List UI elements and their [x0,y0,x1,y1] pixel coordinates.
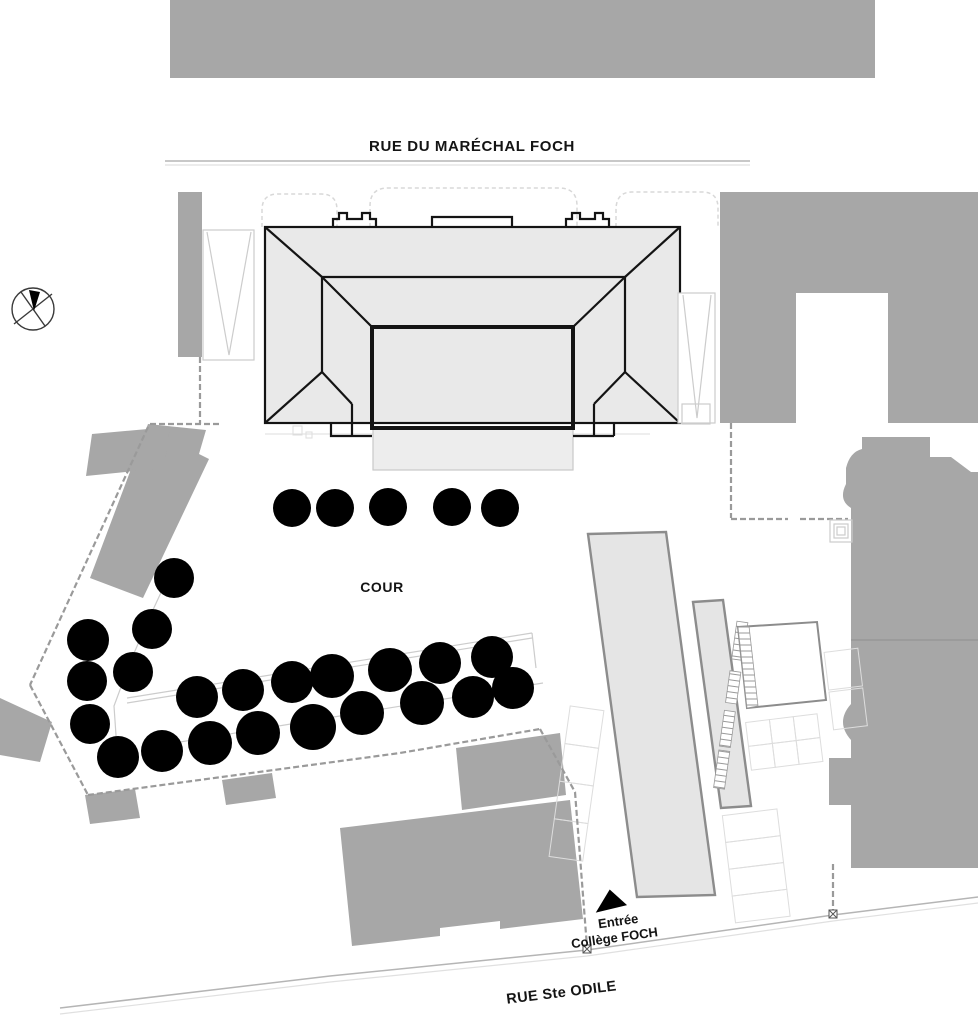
tree [176,676,218,718]
tree [141,730,183,772]
tree [222,669,264,711]
south-neighbour-building [340,800,583,946]
garden-walk-end [532,633,536,668]
main-building [262,188,718,470]
tree [368,648,412,692]
tree [369,488,407,526]
street-label-foch: RUE DU MARÉCHAL FOCH [369,138,575,155]
south-boundary-block-2 [222,773,276,805]
southwest-corner-block [0,698,52,762]
canopy-arc-center [370,188,577,227]
gate-marker-east [829,910,837,918]
tree [113,652,153,692]
sidewalk-mark-2 [306,432,312,438]
tree [271,661,313,703]
tree [70,704,110,744]
tree [188,721,232,765]
west-annex-wall [178,192,202,357]
north-arrow-icon [12,288,54,330]
tree [310,654,354,698]
roof-dormer [432,217,512,227]
east-tower-building [829,437,978,868]
tree [67,619,109,661]
tree [273,489,311,527]
courtyard-room-grid [746,714,823,770]
tree [97,736,139,778]
tree [154,558,194,598]
tree [433,488,471,526]
chimney-right [566,213,609,227]
tree [419,642,461,684]
canopy-arc-right [616,192,718,227]
tree [481,489,519,527]
east-u-shaped-building [720,192,978,423]
south-room-grid [722,809,790,923]
tree [236,711,280,755]
south-extension [373,428,573,470]
tree [290,704,336,750]
tree [340,691,384,735]
college-main-slab [588,532,715,897]
north-neighbour-building [170,0,875,78]
courtyard-label: COUR [360,579,404,595]
entrance-arrow-icon [593,887,628,912]
tree [316,489,354,527]
tree [132,609,172,649]
tree [400,681,444,725]
site-plan: RUE DU MARÉCHAL FOCH COUR Entrée Collège… [0,0,978,1024]
street-label-odile: RUE Ste ODILE [506,978,618,1007]
shaft-structure [830,520,852,542]
site-plan-page: RUE DU MARÉCHAL FOCH COUR Entrée Collège… [0,0,978,1024]
tree [67,661,107,701]
tree [452,676,494,718]
canopy-arc-left [262,194,337,227]
tree [492,667,534,709]
